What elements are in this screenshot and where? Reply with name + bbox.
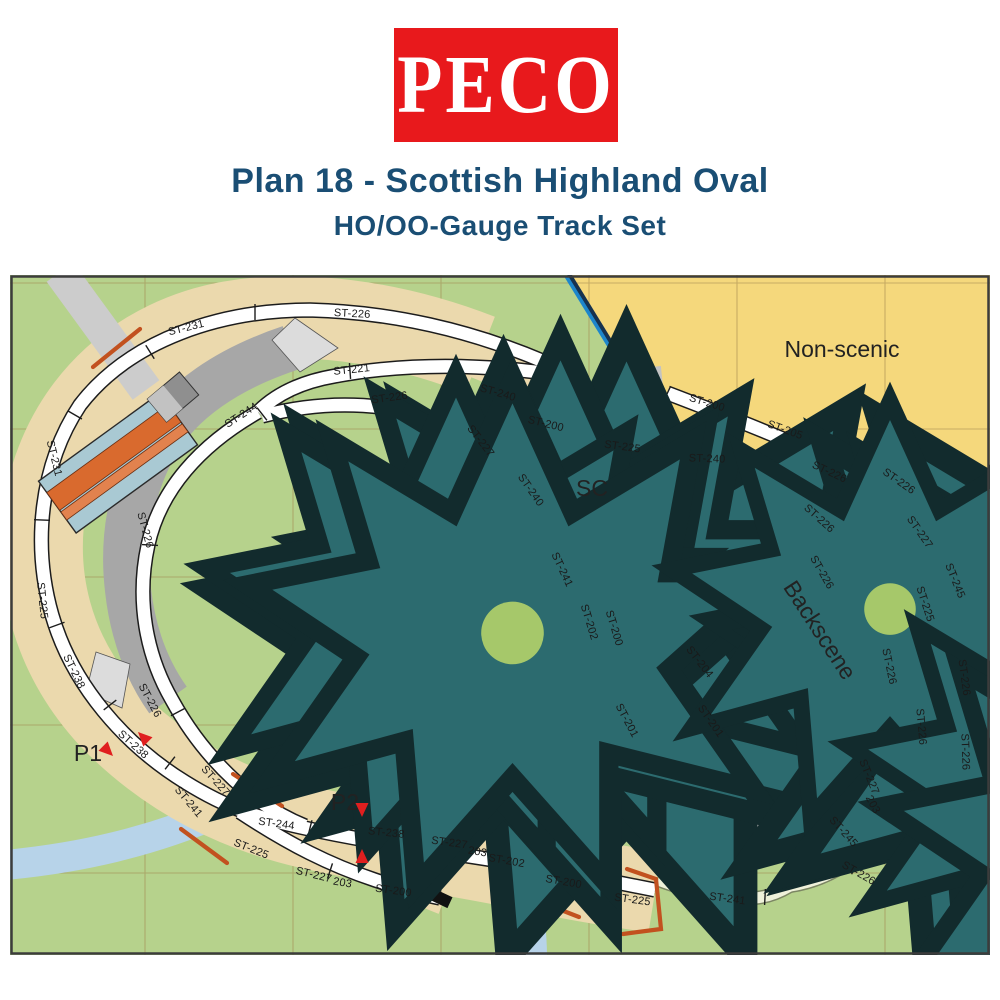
peco-logo: PECO	[394, 28, 618, 142]
track-piece-label: ST-226	[334, 307, 371, 321]
p2-label: P2	[331, 789, 359, 815]
track-plan: ST-231ST-226ST-244ST-221ST-226ST-240ST-2…	[10, 275, 990, 955]
signal-cabin-label: SC	[576, 475, 608, 501]
plan-layers: ST-231ST-226ST-244ST-221ST-226ST-240ST-2…	[10, 275, 990, 955]
track-piece-label: ST-226	[958, 733, 971, 770]
non-scenic-label: Non-scenic	[784, 336, 899, 362]
track-piece-label: ST-240	[689, 452, 726, 465]
p1-label: P1	[74, 740, 102, 766]
peco-logo-text: PECO	[397, 37, 615, 132]
page: { "header": { "logo_text": "PECO", "titl…	[0, 0, 1000, 1000]
page-subtitle: HO/OO-Gauge Track Set	[0, 210, 1000, 242]
page-title: Plan 18 - Scottish Highland Oval	[0, 162, 1000, 201]
